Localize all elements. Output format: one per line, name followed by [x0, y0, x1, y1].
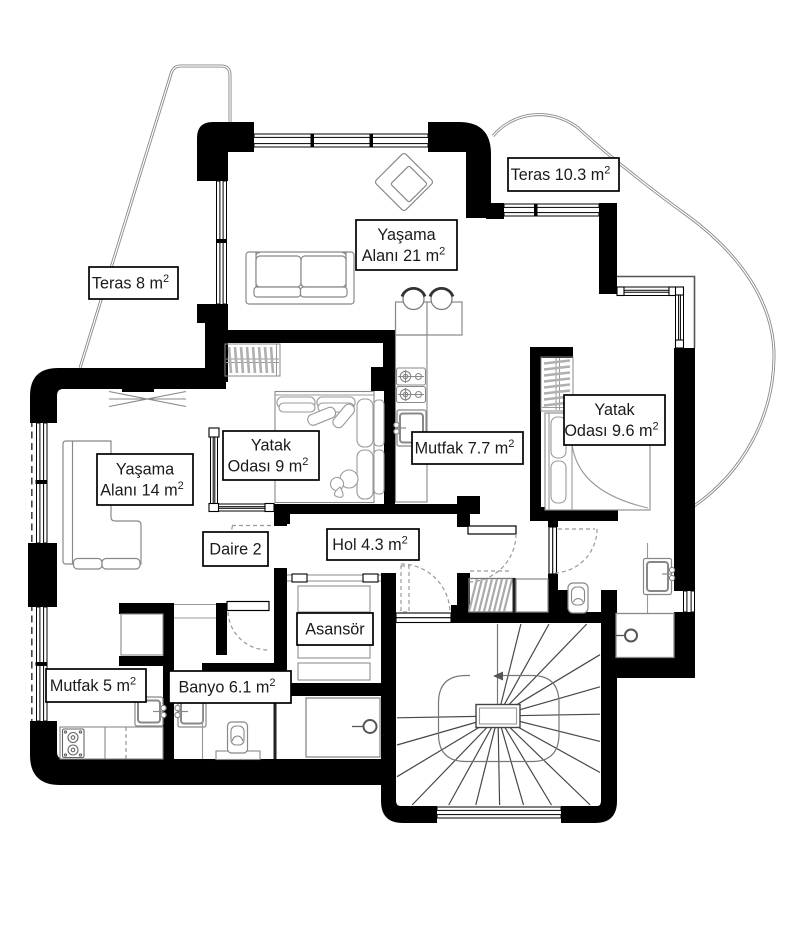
svg-text:Alanı 14 m2: Alanı 14 m2 — [100, 480, 184, 500]
svg-text:Banyo 6.1 m2: Banyo 6.1 m2 — [178, 677, 275, 697]
svg-text:Daire 2: Daire 2 — [209, 541, 261, 559]
svg-text:Teras 10.3 m2: Teras 10.3 m2 — [511, 165, 611, 185]
svg-text:Alanı 21 m2: Alanı 21 m2 — [362, 246, 446, 266]
svg-text:Mutfak 5 m2: Mutfak 5 m2 — [50, 676, 136, 696]
svg-text:Yaşama: Yaşama — [377, 226, 435, 244]
svg-text:Teras 8 m2: Teras 8 m2 — [92, 273, 169, 293]
svg-text:Odası 9.6 m2: Odası 9.6 m2 — [564, 421, 658, 441]
svg-text:Yatak: Yatak — [594, 401, 635, 419]
svg-text:Yaşama: Yaşama — [116, 461, 174, 479]
svg-text:Yatak: Yatak — [251, 437, 292, 455]
svg-text:Asansör: Asansör — [305, 621, 365, 639]
svg-text:Odası 9 m2: Odası 9 m2 — [228, 456, 309, 476]
svg-text:Hol 4.3 m2: Hol 4.3 m2 — [332, 535, 407, 555]
svg-text:Mutfak 7.7 m2: Mutfak 7.7 m2 — [415, 438, 515, 458]
